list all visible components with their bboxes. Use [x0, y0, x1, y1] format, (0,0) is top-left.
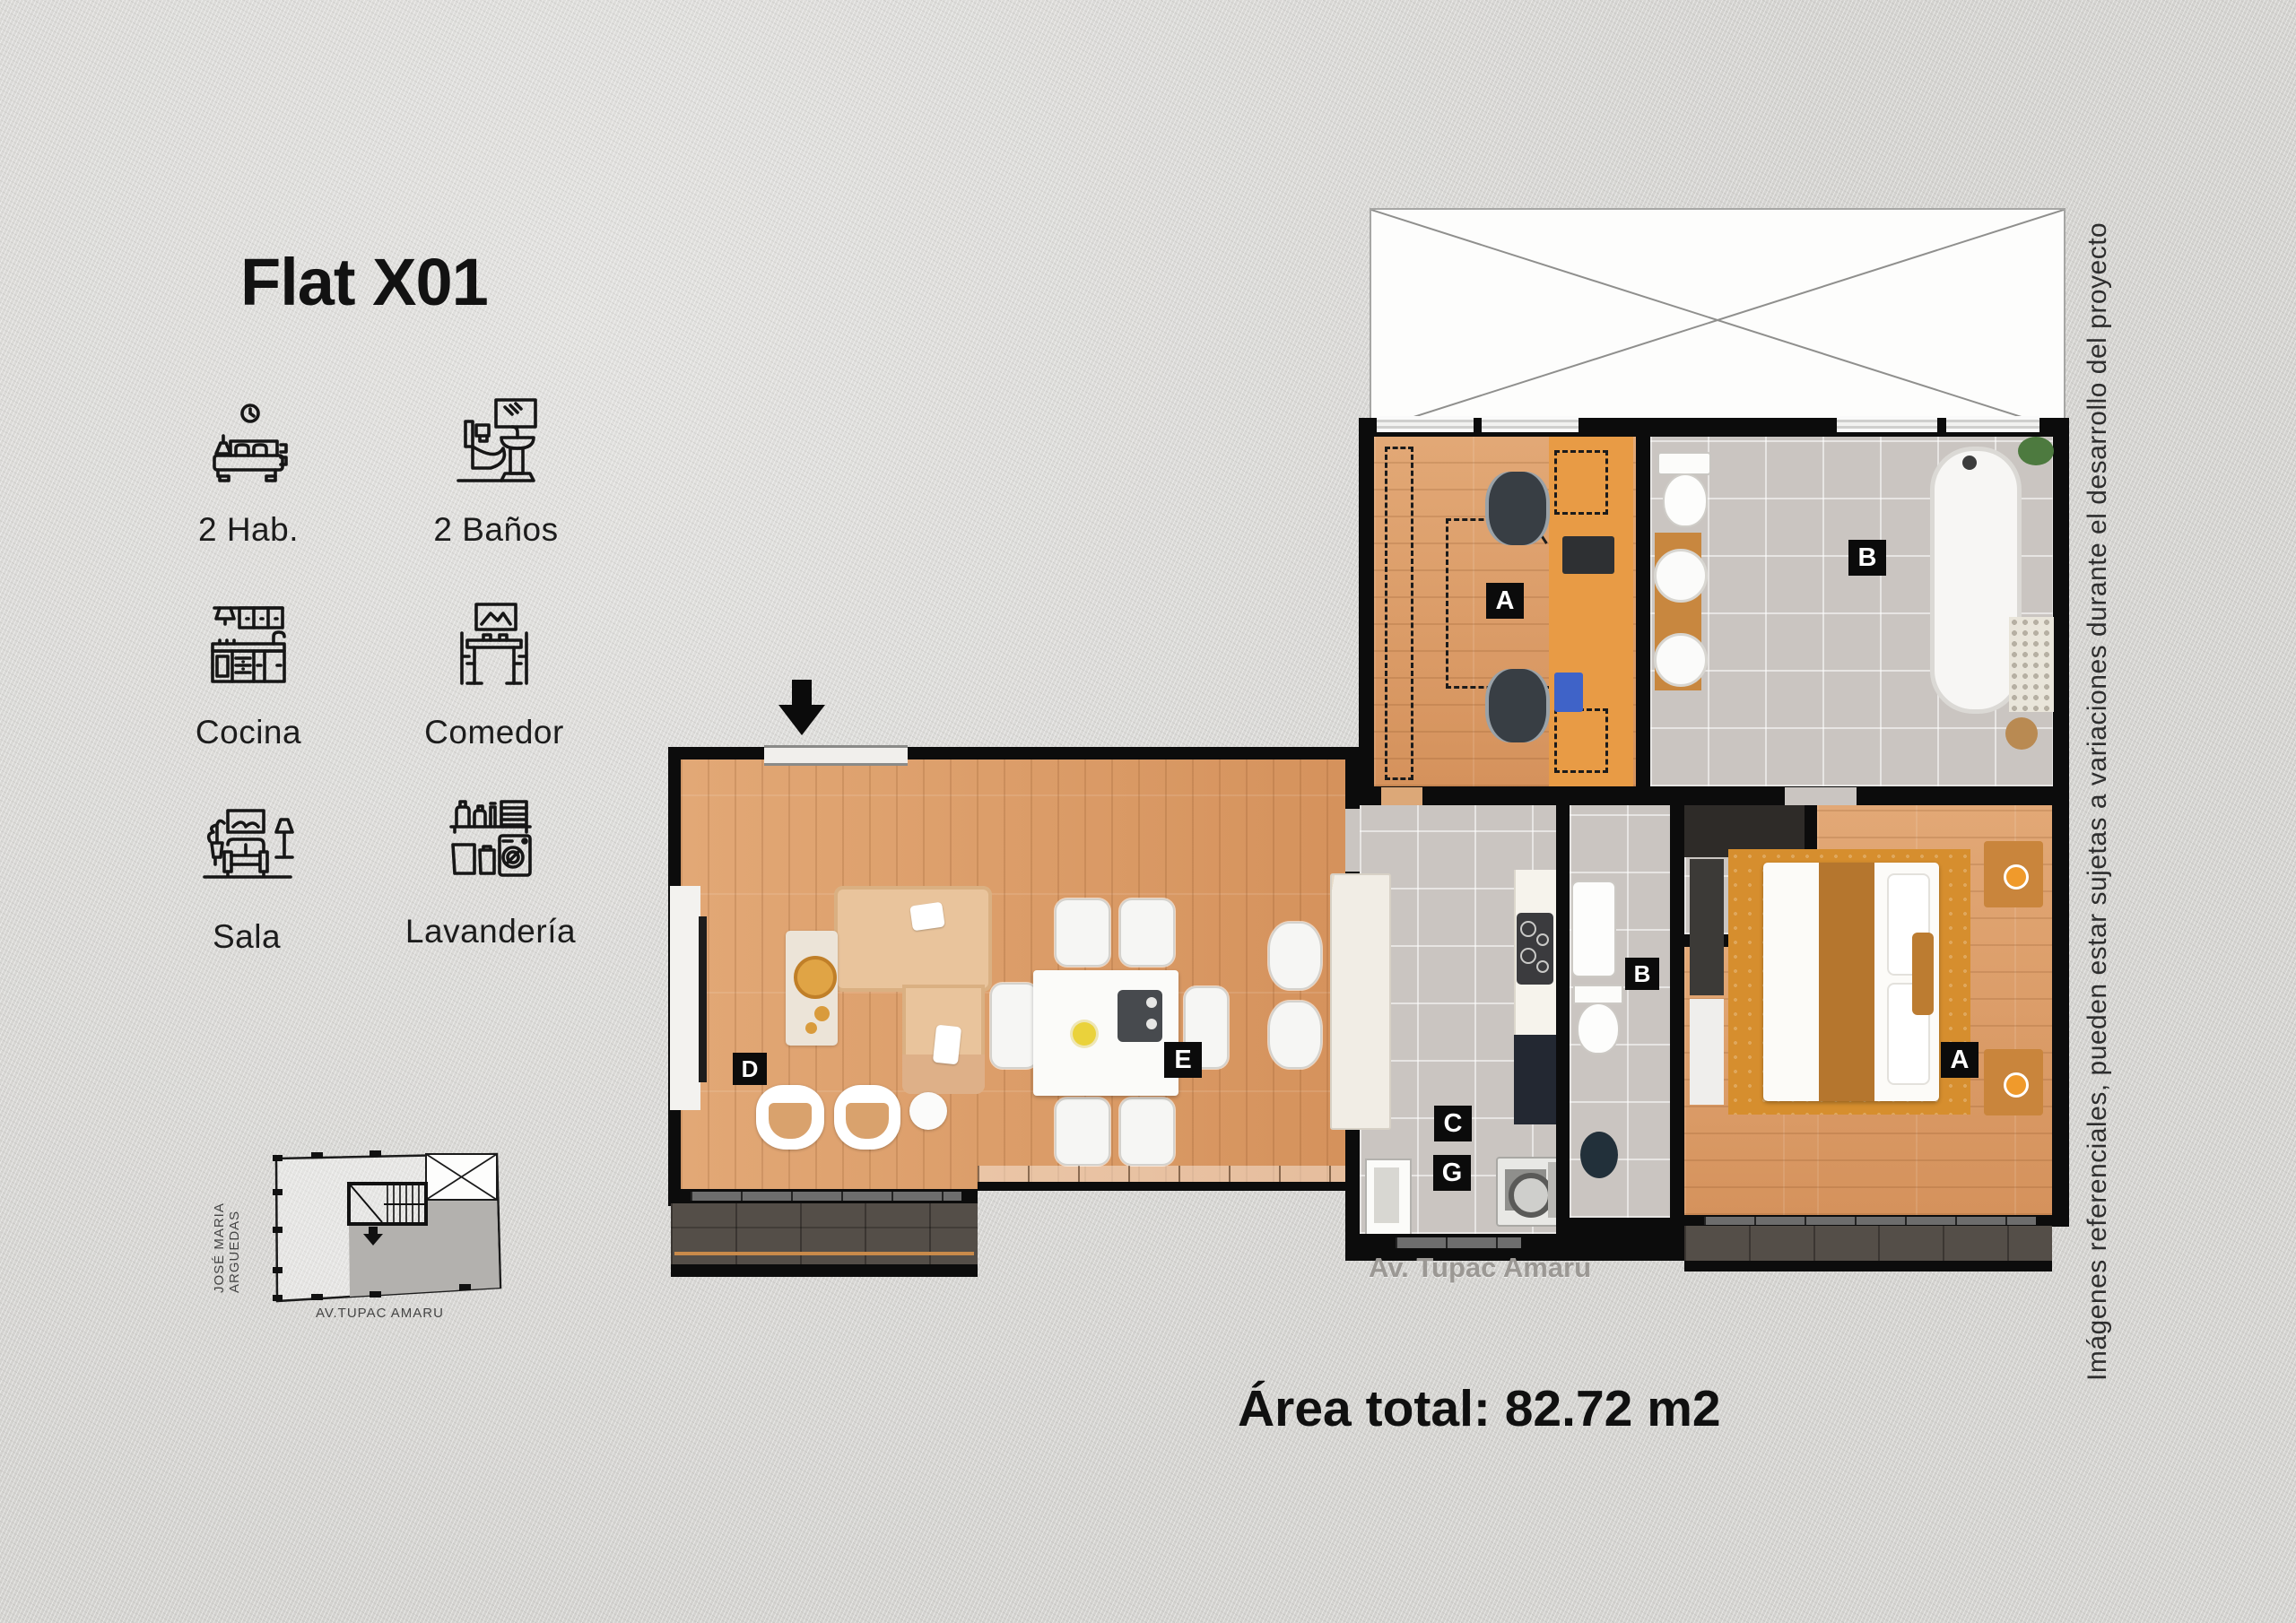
decor-dot: [814, 1006, 830, 1021]
room-label-bath-top: B: [1848, 540, 1886, 576]
room-label-living: D: [733, 1053, 767, 1085]
tray-dot: [1146, 997, 1157, 1008]
window-band: [691, 1192, 961, 1201]
armchair-seat: [846, 1103, 889, 1139]
office-chair-bottom: [1489, 669, 1546, 742]
window: [1377, 416, 1474, 432]
washing-machine: [1496, 1157, 1562, 1227]
terrace-crossed-box: [1370, 208, 2066, 432]
bar-chair: [1268, 922, 1322, 990]
kitchen-opening: [1345, 809, 1360, 872]
dining-chair: [1055, 898, 1110, 967]
wall: [671, 1264, 978, 1277]
entrance-arrow-icon: [775, 680, 829, 739]
desk-blue-object: [1554, 673, 1583, 712]
bathtub: [1930, 447, 2022, 714]
nightstand: [1984, 1049, 2043, 1115]
table-tray: [1118, 990, 1162, 1042]
door-gap-bedroom-top: [1381, 787, 1422, 805]
window: [1946, 416, 2039, 432]
tray-dot: [1146, 1019, 1157, 1029]
door-gap-bath-top: [1785, 787, 1857, 805]
wood-stool: [2005, 717, 2038, 750]
area-total: Área total: 82.72 m2: [1238, 1379, 1721, 1438]
utility-tray-inner: [1374, 1167, 1399, 1223]
tv-panel: [670, 886, 700, 1110]
lamp: [2004, 1072, 2029, 1098]
window-band: [1704, 1217, 2036, 1225]
dining-chair: [1055, 1098, 1110, 1166]
tub-faucet: [1962, 456, 1977, 470]
room-label-bedroom-top: A: [1486, 583, 1524, 619]
balcony-right: [1684, 1226, 2052, 1263]
room-label-laundry: G: [1433, 1155, 1471, 1191]
wall: [978, 1182, 1347, 1191]
accent-pillow: [1912, 933, 1934, 1015]
room-label-dining: E: [1164, 1042, 1202, 1078]
window-band: [1396, 1237, 1521, 1248]
armchair: [756, 1085, 824, 1150]
desk-chair-dashed-bottom: [1554, 708, 1608, 773]
room-label-kitchen: C: [1434, 1106, 1472, 1141]
room-label-bath-lower: B: [1625, 958, 1659, 990]
dining-chair: [1119, 898, 1175, 967]
wall: [2052, 805, 2069, 1227]
toilet-tank-lower: [1573, 985, 1623, 1004]
wall: [1556, 805, 1570, 1234]
bar-chair: [1268, 1001, 1322, 1069]
dining-chair: [990, 983, 1039, 1069]
toilet-tank-top: [1657, 452, 1711, 475]
lamp: [2004, 864, 2029, 890]
flowers: [1073, 1022, 1096, 1046]
island-counter: [1330, 873, 1391, 1130]
entrance-door: [764, 745, 908, 766]
wardrobe-dashed-outline: [1385, 447, 1413, 780]
side-table-round: [909, 1092, 947, 1130]
floor-plan: A B D: [0, 0, 2296, 1623]
toilet-bowl-lower: [1577, 1002, 1620, 1055]
desk-monitor: [1562, 536, 1614, 574]
tv: [699, 916, 707, 1082]
balcony-wood-edge: [674, 1252, 974, 1255]
wall: [1684, 1261, 2052, 1271]
nightstand: [1984, 841, 2043, 907]
utility-tray: [1365, 1159, 1412, 1236]
bedroom-dresser: [1690, 999, 1724, 1105]
desk-chair-dashed-top: [1554, 450, 1608, 515]
window: [1837, 416, 1937, 432]
cooktop: [1517, 913, 1553, 985]
wall: [1670, 805, 1684, 1218]
sink-round-1: [1654, 549, 1708, 603]
bath-lower-sink: [1571, 881, 1616, 977]
window: [1482, 416, 1578, 432]
window-band: [978, 1166, 1347, 1184]
bedroom-closet: [1690, 859, 1724, 995]
decor-tray: [794, 956, 837, 999]
disclaimer-vertical: Imágenes referenciales, pueden estar suj…: [2083, 215, 2113, 1381]
sink-round-2: [1654, 633, 1708, 687]
armchair-seat: [769, 1103, 812, 1139]
sofa-pillow: [933, 1025, 961, 1065]
dining-chair: [1119, 1098, 1175, 1166]
sofa-chaise: [834, 886, 992, 992]
washer-drum: [1509, 1173, 1553, 1218]
balcony-left: [671, 1203, 978, 1268]
bed-blanket: [1819, 863, 1874, 1101]
kitchen-lower-cabinet: [1514, 1035, 1556, 1124]
plan-street-label: Av. Tupac Amaru: [1369, 1252, 1591, 1284]
plant: [2018, 437, 2054, 465]
decor-dot: [805, 1022, 817, 1034]
pebble-mat: [2009, 617, 2054, 712]
toilet-bowl-top: [1663, 473, 1708, 527]
armchair: [834, 1085, 900, 1150]
bath-mat: [1580, 1132, 1618, 1178]
room-label-bedroom-lower: A: [1941, 1042, 1979, 1078]
sofa-pillow: [909, 902, 945, 932]
office-chair-top: [1489, 472, 1546, 545]
